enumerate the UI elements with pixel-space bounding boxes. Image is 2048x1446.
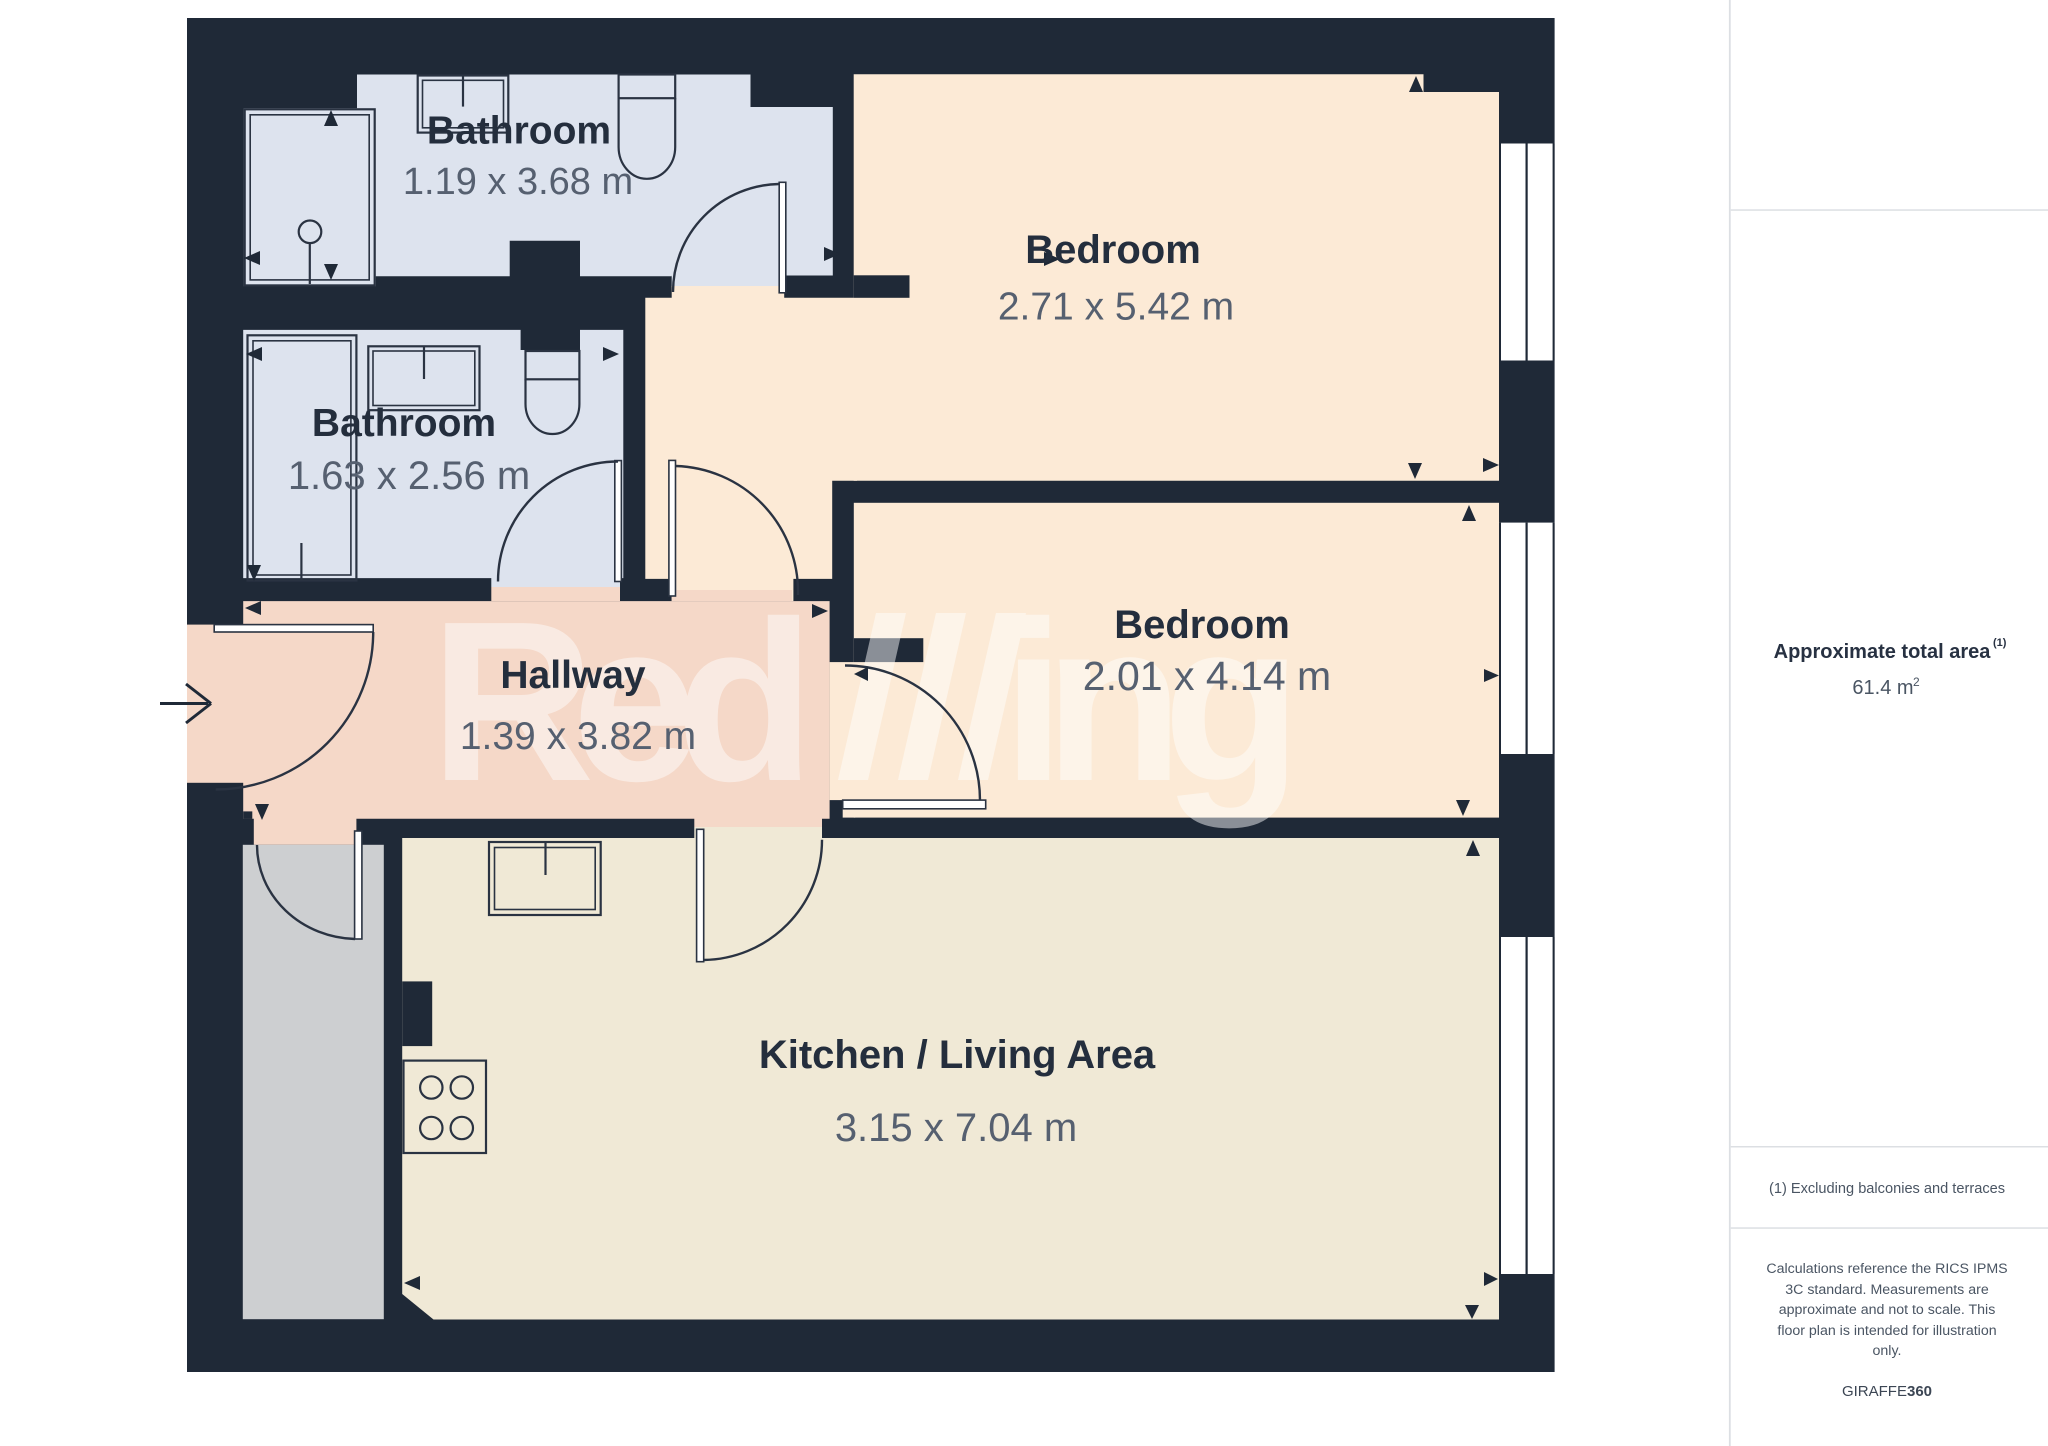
- svg-text:2.01 x 4.14 m: 2.01 x 4.14 m: [1083, 653, 1331, 699]
- svg-text:(1) Excluding balconies and te: (1) Excluding balconies and terraces: [1769, 1181, 2005, 1197]
- svg-text:Hallway: Hallway: [500, 654, 646, 697]
- svg-text:2.71 x 5.42 m: 2.71 x 5.42 m: [998, 286, 1234, 329]
- svg-text:1.19 x 3.68 m: 1.19 x 3.68 m: [403, 161, 633, 203]
- svg-text:Bathroom: Bathroom: [427, 110, 611, 153]
- svg-text:1.39 x 3.82 m: 1.39 x 3.82 m: [460, 715, 696, 758]
- svg-text:Calculations reference the RIC: Calculations reference the RICS IPMS: [1766, 1261, 2007, 1277]
- svg-text:Bedroom: Bedroom: [1114, 603, 1290, 647]
- svg-text:only.: only.: [1873, 1343, 1902, 1359]
- svg-text:Red: Red: [430, 575, 815, 829]
- svg-text:GIRAFFE360: GIRAFFE360: [1842, 1383, 1932, 1400]
- svg-text:approximate and not to scale.: approximate and not to scale. This: [1779, 1302, 1996, 1318]
- svg-text:Bathroom: Bathroom: [312, 402, 496, 445]
- svg-text:3C standard. Measurements are: 3C standard. Measurements are: [1785, 1282, 1989, 1298]
- svg-text:(1): (1): [1993, 637, 2007, 649]
- svg-text:Bedroom: Bedroom: [1025, 228, 1201, 272]
- svg-text:floor plan is intended for ill: floor plan is intended for illustration: [1777, 1323, 1996, 1339]
- svg-text:61.4 m: 61.4 m: [1852, 677, 1913, 699]
- svg-text:Approximate total area: Approximate total area: [1774, 641, 1992, 663]
- svg-text:1.63 x 2.56 m: 1.63 x 2.56 m: [288, 454, 530, 498]
- svg-text:2: 2: [1913, 675, 1920, 689]
- svg-text:3.15 x 7.04 m: 3.15 x 7.04 m: [835, 1106, 1077, 1150]
- svg-text:Kitchen / Living Area: Kitchen / Living Area: [759, 1033, 1156, 1077]
